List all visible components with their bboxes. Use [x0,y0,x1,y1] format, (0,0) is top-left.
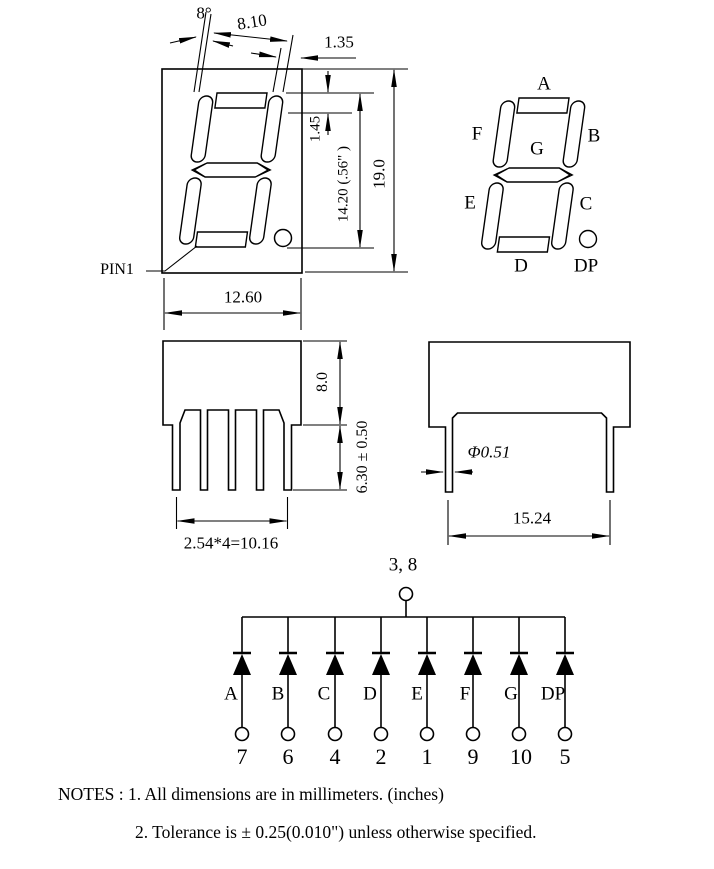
note-line-2: 2. Tolerance is ± 0.25(0.010") unless ot… [135,822,537,843]
circuit-pin-9: 9 [468,746,479,768]
front-package-outline [162,69,302,273]
circuit-pin-1: 1 [422,746,433,768]
note-line-1: NOTES : 1. All dimensions are in millime… [58,784,444,805]
segment-label-c: C [580,195,593,214]
segment-dp-circle [580,231,597,248]
circuit-branch-dp [556,617,574,741]
circuit-pin-6: 6 [283,746,294,768]
pin-length-label: 6.30 ± 0.50 [355,421,371,494]
circuit-segment-a: A [224,685,238,704]
circuit-branch-d [372,617,390,741]
circuit-segment-b: B [272,685,285,704]
segment-diagram-drawing [480,98,596,252]
circuit-branch-b [279,617,297,741]
segment-label-g: G [530,140,544,159]
circuit-pin-4: 4 [330,746,341,768]
common-terminal-circle [400,588,413,601]
circuit-branch-a [233,617,251,741]
circuit-diagram-drawing [233,588,574,741]
circuit-pin-7: 7 [237,746,248,768]
segment-label-a: A [537,75,551,94]
row-spacing-label: 15.24 [513,510,551,527]
circuit-pin-2: 2 [376,746,387,768]
segment-digit-figure [480,98,586,252]
front-digit-figure [178,93,284,247]
front-dp-circle [275,230,292,247]
circuit-segment-d: D [363,685,377,704]
segment-label-dp: DP [574,257,598,276]
segment-label-b: B [588,127,601,146]
pin-pitch-label: 2.54*4=10.16 [184,535,279,552]
side-body-outline [163,341,301,490]
circuit-segment-g: G [504,685,518,704]
common-pins-label: 3, 8 [389,556,418,575]
circuit-pin-10: 10 [510,746,532,768]
lateral-body-outline [429,342,630,492]
pin1-label: PIN1 [100,262,134,278]
circuit-branch-g [510,617,528,741]
package-height-label: 19.0 [371,159,388,189]
pin-diameter-label: Φ0.51 [468,444,511,461]
digit-height-label: 14.20 (.56" ) [337,146,352,222]
circuit-segment-e: E [411,685,423,704]
tilt-angle-label: 8° [196,5,211,22]
front-side-view-drawing [163,341,347,529]
segment-thickness-label: 1.45 [309,116,324,142]
datasheet-drawing-page: 8° 8.10 1.35 1.45 14.20 (.56" ) 19.0 12.… [0,0,714,869]
circuit-branch-e [418,617,436,741]
segment-label-f: F [472,125,483,144]
circuit-pin-5: 5 [560,746,571,768]
circuit-branch-f [464,617,482,741]
package-width-label: 12.60 [224,289,262,306]
circuit-segment-dp: DP [541,685,565,704]
circuit-segment-f: F [460,685,471,704]
digit-width-label: 8.10 [236,11,268,32]
segment-label-d: D [514,257,528,276]
body-depth-label: 8.0 [315,372,331,392]
circuit-segment-c: C [318,685,331,704]
circuit-branch-c [326,617,344,741]
segment-label-e: E [464,194,476,213]
segment-gap-label: 1.35 [324,34,354,51]
